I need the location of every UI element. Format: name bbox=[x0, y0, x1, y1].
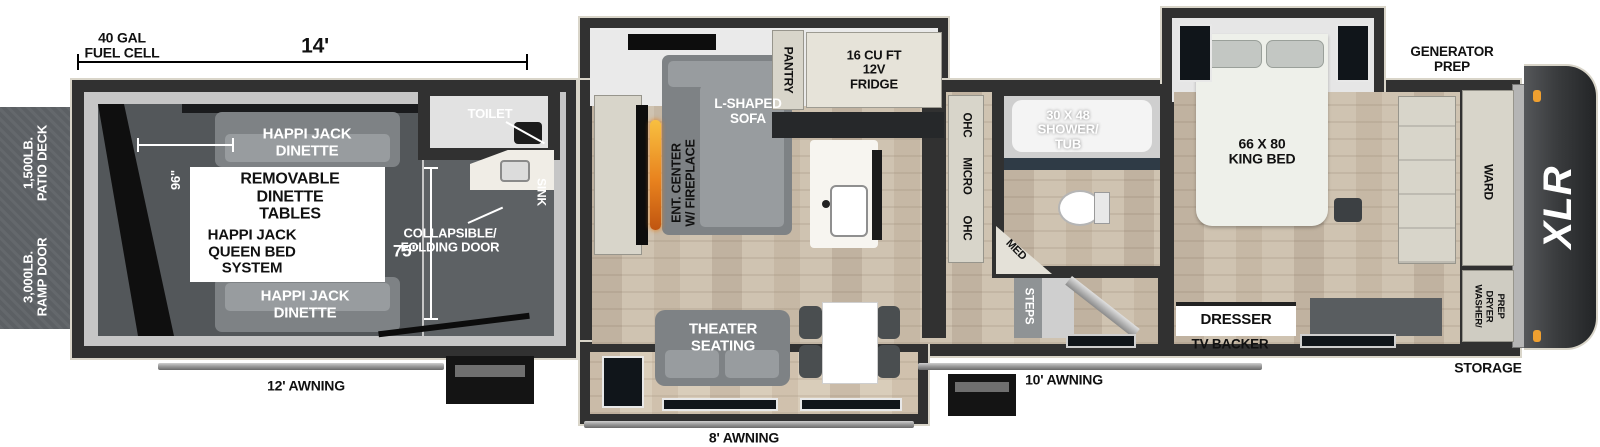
ent-center-tv bbox=[636, 105, 648, 245]
dim-96-tick-left bbox=[137, 138, 139, 152]
nightstand bbox=[1334, 198, 1362, 222]
bed-corner-unit bbox=[1310, 298, 1442, 336]
bed-pillow bbox=[1266, 40, 1324, 68]
kitchen-counter-dark bbox=[772, 112, 944, 138]
floorplan-canvas: 1,500LB. PATIO DECK 3,000LB. RAMP DOOR H… bbox=[0, 0, 1600, 447]
storage-label: STORAGE bbox=[1454, 360, 1522, 375]
dim-14-tick-right bbox=[526, 54, 528, 70]
awning-front-bar bbox=[918, 363, 1262, 370]
bedroom-slide-window bbox=[1178, 24, 1212, 82]
dinette-chair bbox=[877, 345, 900, 378]
kitchen-faucet bbox=[822, 200, 830, 208]
hall-window bbox=[1066, 334, 1136, 348]
marker-light bbox=[1533, 90, 1541, 102]
island-edge bbox=[872, 150, 882, 240]
bath-toilet-tank bbox=[1094, 192, 1110, 224]
fireplace-flame bbox=[650, 120, 661, 230]
washer-dryer-label: WASHER/ DRYER PREP bbox=[1472, 285, 1506, 328]
slide-window bbox=[662, 398, 778, 411]
theater-label: THEATER SEATING bbox=[689, 322, 757, 355]
brand-logo: XLR bbox=[1536, 166, 1580, 249]
rear-entry-step bbox=[446, 356, 534, 404]
dim-96-line bbox=[138, 144, 234, 146]
awning-front-label: 10' AWNING bbox=[1025, 372, 1103, 387]
kitchen-sink bbox=[830, 185, 868, 237]
tv-backer-label: TV BACKER bbox=[1192, 338, 1269, 353]
garage-length-label: 14' bbox=[301, 34, 329, 57]
dim-14-tick-left bbox=[77, 54, 79, 70]
sink-basin bbox=[500, 160, 530, 182]
ohc-bottom-label: OHC bbox=[960, 216, 973, 241]
shower-label: 30 X 48 SHOWER/ TUB bbox=[1038, 109, 1099, 152]
shower-rim bbox=[1004, 158, 1160, 170]
dinette-top-label: HAPPI JACK DINETTE bbox=[263, 127, 352, 160]
main-entry-step bbox=[948, 374, 1016, 416]
garage-width-label: 96" bbox=[169, 170, 183, 190]
ramp-door-label: 3,000LB. RAMP DOOR bbox=[22, 238, 51, 317]
micro-label: MICRO bbox=[960, 157, 973, 194]
generator-prep-label: GENERATOR PREP bbox=[1410, 45, 1493, 75]
awning-mid-label: 8' AWNING bbox=[709, 430, 779, 445]
bedroom-closet-panel bbox=[1398, 96, 1456, 264]
removable-tables-label: REMOVABLE DINETTE TABLES bbox=[240, 171, 339, 224]
garage-opening-label: 75" bbox=[393, 243, 419, 262]
marker-light bbox=[1533, 330, 1541, 342]
bedroom-window bbox=[1300, 334, 1396, 348]
dinette-chair bbox=[799, 306, 822, 339]
dinette-bottom-label: HAPPI JACK DINETTE bbox=[261, 289, 350, 322]
dinette-chair bbox=[799, 345, 822, 378]
bed-pillow bbox=[1204, 40, 1262, 68]
bedroom-slide-window bbox=[1336, 24, 1370, 82]
ohc-top-label: OHC bbox=[960, 113, 973, 138]
dim-96-tick-right bbox=[232, 138, 234, 152]
dinette-table bbox=[822, 302, 878, 384]
sofa-label: L-SHAPED SOFA bbox=[714, 97, 781, 127]
dim-75-tick-top bbox=[424, 167, 438, 169]
dinette-chair bbox=[877, 306, 900, 339]
toilet-label: TOILET bbox=[468, 107, 513, 121]
awning-rear-label: 12' AWNING bbox=[267, 378, 345, 393]
slide-window bbox=[800, 398, 902, 411]
ent-center-label: ENT. CENTER W/ FIREPLACE bbox=[670, 139, 698, 226]
king-bed-label: 66 X 80 KING BED bbox=[1229, 137, 1296, 168]
pantry-label: PANTRY bbox=[781, 47, 794, 94]
queen-bed-label: HAPPI JACK QUEEN BED SYSTEM bbox=[208, 227, 297, 277]
ent-center-cabinet bbox=[594, 95, 642, 255]
awning-mid-bar bbox=[584, 421, 914, 428]
sink-label: SINK bbox=[534, 178, 547, 206]
slide-window bbox=[602, 356, 644, 408]
sofa-back bbox=[668, 61, 786, 87]
fuel-cell-label: 40 GAL FUEL CELL bbox=[85, 31, 160, 62]
slide-tv bbox=[628, 34, 716, 50]
dim-75-tick-bottom bbox=[424, 318, 438, 320]
steps-label: STEPS bbox=[1022, 288, 1035, 325]
ward-label: WARD bbox=[1481, 164, 1494, 200]
fridge-label: 16 CU FT 12V FRIDGE bbox=[847, 49, 902, 92]
patio-deck-label: 1,500LB. PATIO DECK bbox=[22, 125, 51, 201]
dresser-label: DRESSER bbox=[1200, 312, 1271, 329]
awning-rear-bar bbox=[158, 363, 444, 370]
